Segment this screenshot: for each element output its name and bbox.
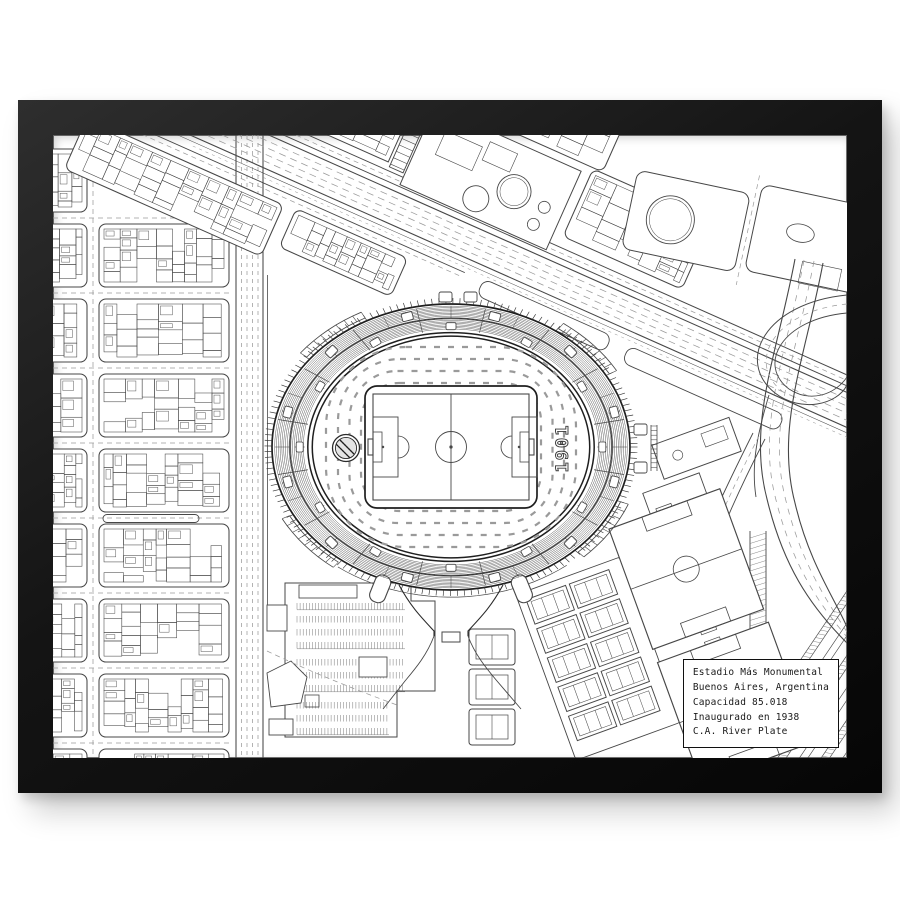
info-line-capacity: Capacidad 85.018	[693, 696, 829, 711]
stadium-print: 1901 Estadio Más Monumental Buenos Aires…	[53, 135, 847, 758]
info-box: Estadio Más Monumental Buenos Aires, Arg…	[683, 659, 839, 748]
info-line-city: Buenos Aires, Argentina	[693, 681, 829, 696]
info-line-club: C.A. River Plate	[693, 725, 829, 740]
wall-background: 1901 Estadio Más Monumental Buenos Aires…	[0, 0, 900, 900]
park-layer	[619, 150, 847, 318]
picture-frame: 1901 Estadio Más Monumental Buenos Aires…	[18, 100, 882, 793]
info-line-title: Estadio Más Monumental	[693, 666, 829, 681]
founded-year-label: 1901	[553, 424, 573, 473]
info-line-opened: Inaugurado en 1938	[693, 711, 829, 726]
